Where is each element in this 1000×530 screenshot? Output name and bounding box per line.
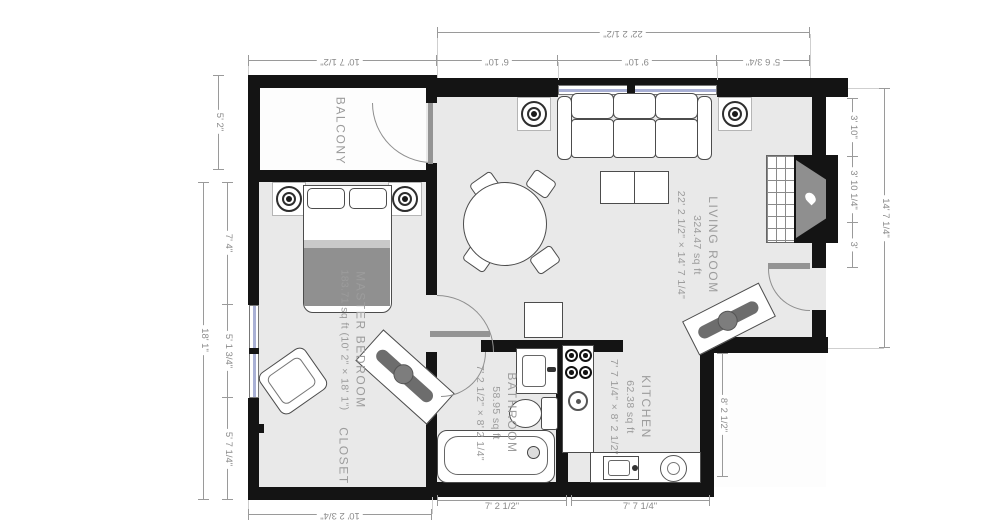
extension-line [828, 348, 884, 349]
sofa-armrest [557, 96, 572, 160]
wall-closet-stub [248, 424, 264, 433]
tick [198, 499, 209, 500]
sofa-back-cushion [655, 93, 698, 119]
wall-bottom [437, 482, 714, 497]
kitchen-sink-basin [608, 460, 630, 476]
tick [437, 27, 438, 38]
room-name: MASTER BEDROOM [351, 269, 368, 410]
room-area: 58.95 sq ft [487, 365, 502, 461]
extension-line [432, 497, 433, 514]
burner-plate-inner [667, 462, 680, 475]
dim-label-bottom-kitchen: 7' 7 1/4" [620, 502, 660, 512]
dim-label-top-seg3: 5' 6 3/4" [743, 56, 783, 66]
tick [571, 495, 572, 506]
dim-label-left-seg3: 5' 7 1/4" [223, 429, 233, 469]
extension-line [558, 62, 559, 80]
tick [717, 476, 728, 477]
tick [213, 169, 224, 170]
wall-balcony-left [248, 88, 260, 170]
ceiling-light-icon [517, 97, 551, 131]
room-label-master-bedroom: MASTER BEDROOM 183.71 sq ft (10' 2" × 18… [336, 269, 369, 410]
light-bulb [402, 196, 408, 202]
kitchen-counter-left [562, 345, 594, 453]
floor-plan: 22' 2 1/2" 10' 7 1/2" 6' 10" 9' 10" 5' 6… [0, 0, 1000, 530]
room-label-kitchen: KITCHEN 62.38 sq ft 7' 7 1/4" × 8' 2 1/2… [606, 359, 654, 455]
tick [248, 509, 249, 520]
light-bulb [732, 111, 738, 117]
window-glass-top [559, 89, 716, 92]
window-mullion-left [249, 348, 259, 354]
light-bulb [531, 111, 537, 117]
room-size: 22' 2 1/2" × 14' 7 1/4" [673, 191, 688, 300]
exterior-notch [714, 353, 826, 487]
dim-label-top-seg2: 9' 10" [622, 56, 652, 66]
room-size: 7' 7 1/4" × 8' 2 1/2" [606, 359, 621, 455]
sofa-armrest [697, 96, 712, 160]
tick [213, 75, 224, 76]
wall-above-window [558, 78, 717, 85]
bed-fold [304, 240, 390, 248]
kitchen-counter-bottom [590, 452, 701, 483]
sofa-back-cushion [613, 93, 656, 119]
wall-top-right-section [717, 78, 848, 97]
tick [248, 55, 249, 66]
wall-bedroom-right [426, 182, 437, 295]
room-name: BALCONY [331, 97, 348, 166]
extension-line [810, 34, 811, 78]
room-label-living-room: LIVING ROOM 324.47 sq ft 22' 2 1/2" × 14… [673, 191, 721, 300]
wall-balcony-right-upper [426, 75, 437, 103]
vanity-sink [516, 348, 558, 394]
dim-label-top-seg1: 6' 10" [482, 56, 512, 66]
tick [879, 88, 890, 89]
sofa-back-cushion [571, 93, 614, 119]
room-name: KITCHEN [637, 359, 654, 455]
dim-label-top-balcony: 10' 7 1/2" [317, 56, 363, 66]
fireplace-hearth-tiles [766, 155, 796, 243]
room-area: 324.47 sq ft [688, 191, 703, 300]
dim-label-left-seg2: 5' 1 3/4" [223, 331, 233, 371]
stove-burner [565, 349, 578, 362]
tick [222, 182, 233, 183]
sofa-seat [655, 119, 698, 158]
bathtub-drain [527, 446, 540, 459]
extension-line [437, 34, 438, 78]
tick [222, 499, 233, 500]
pillow [349, 188, 387, 209]
room-label-closet: CLOSET [334, 427, 351, 485]
wall-right-lower [812, 310, 826, 337]
tick [847, 267, 858, 268]
coffee-table [600, 171, 635, 204]
tick [717, 353, 728, 354]
dim-label-left-balcony: 5' 2" [214, 110, 224, 134]
dim-label-left-seg1: 7' 4" [223, 231, 233, 255]
dim-label-right-seg1: 3' 10" [848, 112, 858, 142]
wall-balcony-top [248, 75, 437, 88]
stove-burner [579, 366, 592, 379]
ceiling-light-icon [272, 182, 306, 216]
faucet-icon [547, 367, 556, 372]
wall-left-lower [248, 398, 259, 490]
light-bulb [286, 196, 292, 202]
wall-top-left-section [437, 78, 558, 97]
tick [198, 182, 209, 183]
armchair-cushion [265, 355, 317, 406]
dim-label-right-kitchen: 8' 2 1/2" [718, 395, 728, 435]
dim-label-right-overall: 14' 7 1/4" [880, 195, 890, 241]
tick [809, 55, 810, 66]
tick [879, 347, 890, 348]
dim-label-left-overall: 18' 1" [199, 325, 209, 355]
wall-bedroom-top [248, 170, 437, 182]
ceiling-light-icon [388, 182, 422, 216]
pillow [307, 188, 345, 209]
stove-burner [565, 366, 578, 379]
dining-table [463, 182, 547, 266]
room-name: BATHROOM [503, 365, 520, 461]
kitchen-faucet-icon [632, 465, 638, 471]
sofa-seat [613, 119, 656, 158]
tick [566, 495, 567, 506]
extension-line [717, 62, 718, 80]
tick [847, 98, 858, 99]
room-size: 7' 2 1/2" × 8' 2 1/4" [472, 365, 487, 461]
dim-label-top-overall: 22' 2 1/2" [600, 28, 646, 38]
tick [809, 27, 810, 38]
room-label-balcony: BALCONY [331, 97, 348, 166]
wall-closet-bottom [248, 487, 437, 500]
sofa-seat [571, 119, 614, 158]
dim-label-right-seg2: 3' 10 1/4" [848, 167, 858, 213]
wall-right-upper [812, 88, 826, 157]
dim-label-bottom-bathroom: 7' 2 1/2" [482, 502, 522, 512]
room-label-bathroom: BATHROOM 58.95 sq ft 7' 2 1/2" × 8' 2 1/… [472, 365, 520, 461]
toilet-tank [541, 397, 558, 430]
tick [709, 495, 710, 506]
dim-label-bottom-closet: 10' 2 3/4" [317, 510, 363, 520]
ceiling-light-icon [718, 97, 752, 131]
tick [437, 495, 438, 506]
dim-label-right-seg3: 3' [848, 238, 858, 251]
cabinet [524, 302, 563, 338]
room-name: LIVING ROOM [704, 191, 721, 300]
stove-burner [579, 349, 592, 362]
room-name: CLOSET [334, 427, 351, 485]
sink-basin [522, 355, 546, 387]
wall-kitchen-right [700, 345, 714, 485]
room-area: 62.38 sq ft [621, 359, 636, 455]
tick [431, 509, 432, 520]
wall-left-upper [248, 182, 259, 305]
oven-knob-dot [576, 399, 581, 404]
room-area: 183.71 sq ft (10' 2" × 18' 1") [336, 269, 351, 410]
coffee-table [634, 171, 669, 204]
